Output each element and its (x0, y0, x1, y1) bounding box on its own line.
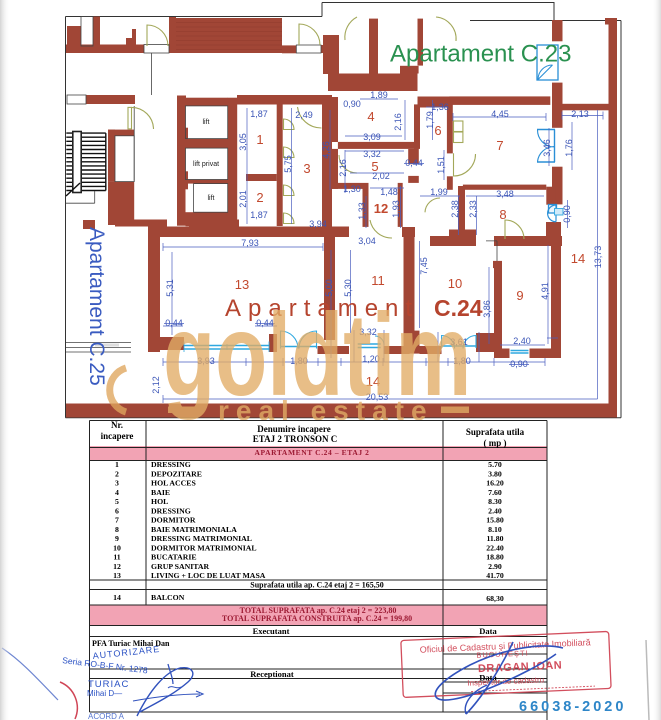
svg-text:( mp ): ( mp ) (484, 438, 507, 448)
svg-text:HOL ACCES: HOL ACCES (151, 479, 196, 488)
svg-text:1: 1 (256, 132, 263, 147)
svg-text:3,94: 3,94 (309, 219, 327, 229)
svg-text:7: 7 (496, 138, 503, 153)
svg-text:1,48: 1,48 (380, 187, 398, 197)
svg-text:1,76: 1,76 (564, 139, 574, 157)
svg-text:0,44: 0,44 (405, 158, 423, 168)
svg-text:2,33: 2,33 (468, 200, 478, 218)
svg-text:3,32: 3,32 (363, 149, 381, 159)
svg-text:8: 8 (115, 525, 119, 534)
svg-text:11: 11 (371, 273, 385, 288)
svg-text:2,38: 2,38 (450, 200, 460, 218)
svg-text:14: 14 (571, 251, 585, 266)
svg-text:0,90: 0,90 (562, 205, 572, 223)
svg-text:1,79: 1,79 (425, 111, 435, 129)
svg-text:0,90: 0,90 (510, 359, 528, 369)
svg-text:2: 2 (256, 190, 263, 205)
svg-text:GRUP SANITAR: GRUP SANITAR (151, 562, 209, 571)
svg-text:18.80: 18.80 (486, 553, 504, 562)
svg-text:11: 11 (113, 553, 120, 562)
svg-text:9: 9 (115, 534, 119, 543)
svg-text:13,73: 13,73 (593, 246, 603, 269)
svg-text:Apartament C.25: Apartament C.25 (85, 227, 108, 386)
svg-text:3,86: 3,86 (482, 300, 492, 318)
svg-text:DRESSING: DRESSING (151, 460, 191, 469)
svg-text:66038-2020: 66038-2020 (519, 699, 626, 715)
svg-text:Suprafata utila ap. C.24 etaj: Suprafata utila ap. C.24 etaj 2 = 165,50 (250, 581, 383, 590)
svg-text:2.90: 2.90 (488, 562, 502, 571)
svg-text:0,90: 0,90 (343, 99, 361, 109)
svg-text:3: 3 (115, 479, 119, 488)
svg-text:Nr.: Nr. (111, 420, 123, 430)
svg-text:4: 4 (367, 109, 374, 124)
svg-text:lift: lift (208, 195, 215, 202)
svg-text:15.80: 15.80 (486, 516, 504, 525)
svg-text:1,51: 1,51 (436, 156, 446, 174)
svg-text:7.60: 7.60 (488, 488, 502, 497)
svg-text:13: 13 (113, 571, 121, 580)
svg-text:16.20: 16.20 (486, 479, 504, 488)
svg-text:TOTAL SUPRAFATA CONSTRUITA ap.: TOTAL SUPRAFATA CONSTRUITA ap. C.24 = 19… (222, 614, 412, 623)
svg-text:3,46: 3,46 (542, 139, 552, 157)
svg-text:2: 2 (115, 469, 119, 478)
svg-text:ETAJ 2 TRONSON C: ETAJ 2 TRONSON C (253, 434, 337, 444)
svg-text:11.80: 11.80 (486, 534, 503, 543)
svg-text:DEPOZITARE: DEPOZITARE (151, 469, 202, 478)
svg-text:1,87: 1,87 (250, 210, 268, 220)
svg-text:1,93: 1,93 (391, 200, 401, 218)
svg-text:DORMITOR MATRIMONIAL: DORMITOR MATRIMONIAL (151, 543, 257, 552)
svg-text:5,75: 5,75 (283, 155, 293, 173)
svg-text:3.80: 3.80 (488, 469, 502, 478)
svg-text:6: 6 (115, 506, 119, 515)
svg-text:7,93: 7,93 (241, 238, 259, 248)
svg-text:3,04: 3,04 (358, 236, 376, 246)
svg-text:HOL: HOL (151, 497, 168, 506)
svg-text:7: 7 (115, 516, 119, 525)
svg-text:4: 4 (115, 488, 119, 497)
svg-text:2.40: 2.40 (488, 506, 502, 515)
svg-text:4,91: 4,91 (540, 282, 550, 300)
svg-text:5.70: 5.70 (488, 460, 502, 469)
svg-text:1: 1 (115, 460, 119, 469)
svg-text:2,12: 2,12 (151, 376, 161, 394)
svg-text:8.30: 8.30 (488, 497, 502, 506)
svg-text:Receptionat: Receptionat (250, 669, 294, 679)
svg-text:1,30: 1,30 (343, 184, 361, 194)
svg-text:DRESSING MATRIMONIAL: DRESSING MATRIMONIAL (151, 534, 252, 543)
svg-text:6: 6 (434, 123, 441, 138)
svg-text:8: 8 (499, 207, 506, 222)
svg-text:3: 3 (303, 161, 310, 176)
svg-text:9: 9 (516, 288, 523, 303)
svg-text:LIVING + LOC DE LUAT MASA: LIVING + LOC DE LUAT MASA (151, 571, 266, 580)
svg-text:3,09: 3,09 (363, 132, 381, 142)
svg-text:incapere: incapere (101, 431, 134, 441)
svg-text:68,30: 68,30 (486, 594, 504, 603)
svg-text:lift privat: lift privat (193, 161, 219, 168)
svg-text:Apartament C.23: Apartament C.23 (390, 41, 571, 68)
svg-text:2,40: 2,40 (513, 336, 531, 346)
svg-text:3,48: 3,48 (496, 189, 514, 199)
svg-text:1,99: 1,99 (430, 187, 448, 197)
svg-text:4,26: 4,26 (321, 141, 331, 159)
svg-text:12: 12 (374, 201, 388, 216)
svg-text:1,89: 1,89 (370, 90, 388, 100)
svg-text:10: 10 (113, 543, 121, 552)
svg-text:DRAGAN IOAN: DRAGAN IOAN (478, 660, 563, 676)
svg-text:2,01: 2,01 (238, 190, 248, 208)
svg-text:BALCON: BALCON (151, 593, 185, 602)
svg-text:4,45: 4,45 (491, 109, 509, 119)
svg-text:DORMITOR: DORMITOR (151, 516, 196, 525)
svg-text:1,87: 1,87 (250, 109, 268, 119)
svg-text:1,36: 1,36 (431, 102, 449, 112)
svg-text:BAIE: BAIE (151, 488, 170, 497)
svg-text:BAIE MATRIMONIALA: BAIE MATRIMONIALA (151, 525, 237, 534)
svg-text:7,45: 7,45 (419, 257, 429, 275)
svg-text:5: 5 (115, 497, 119, 506)
svg-text:2,02: 2,02 (372, 171, 390, 181)
svg-text:Data: Data (479, 626, 497, 636)
svg-text:Suprafata utila: Suprafata utila (466, 427, 525, 437)
svg-text:DRESSING: DRESSING (151, 506, 191, 515)
svg-text:lift: lift (203, 119, 210, 126)
svg-text:22.40: 22.40 (486, 543, 504, 552)
svg-text:2,16: 2,16 (338, 159, 348, 177)
svg-text:8.10: 8.10 (488, 525, 502, 534)
svg-text:APARTAMENT C.24 – ETAJ 2: APARTAMENT C.24 – ETAJ 2 (254, 448, 369, 457)
svg-text:Mihai D—: Mihai D— (87, 689, 122, 698)
svg-text:Executant: Executant (253, 626, 290, 636)
svg-text:2,16: 2,16 (393, 113, 403, 131)
svg-text:12: 12 (113, 562, 121, 571)
svg-text:real estate: real estate (218, 395, 434, 426)
svg-text:ACORD A: ACORD A (88, 712, 125, 720)
svg-text:14: 14 (113, 593, 121, 602)
svg-text:1,33: 1,33 (357, 202, 367, 220)
svg-text:2,13: 2,13 (571, 109, 589, 119)
svg-text:2,49: 2,49 (295, 110, 313, 120)
svg-text:Denumire incapere: Denumire incapere (257, 424, 330, 434)
svg-text:41.70: 41.70 (486, 571, 504, 580)
svg-text:BUCATARIE: BUCATARIE (151, 553, 197, 562)
svg-text:3,05: 3,05 (238, 133, 248, 151)
